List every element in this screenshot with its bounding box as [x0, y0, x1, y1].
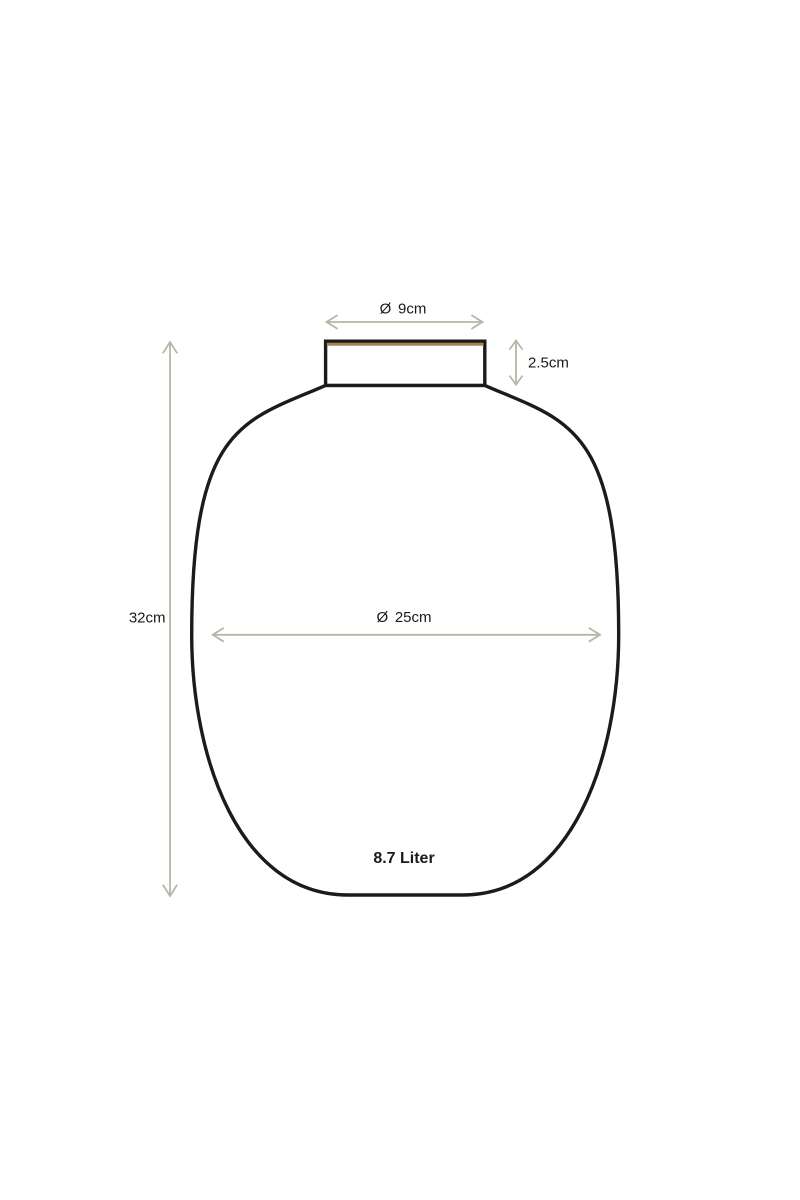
svg-text:8.7 Liter: 8.7 Liter — [373, 850, 434, 867]
svg-text:Ø 9cm: Ø 9cm — [380, 301, 427, 318]
svg-text:Ø 25cm: Ø 25cm — [376, 609, 431, 626]
svg-text:32cm: 32cm — [129, 609, 166, 626]
svg-text:2.5cm: 2.5cm — [528, 354, 569, 371]
